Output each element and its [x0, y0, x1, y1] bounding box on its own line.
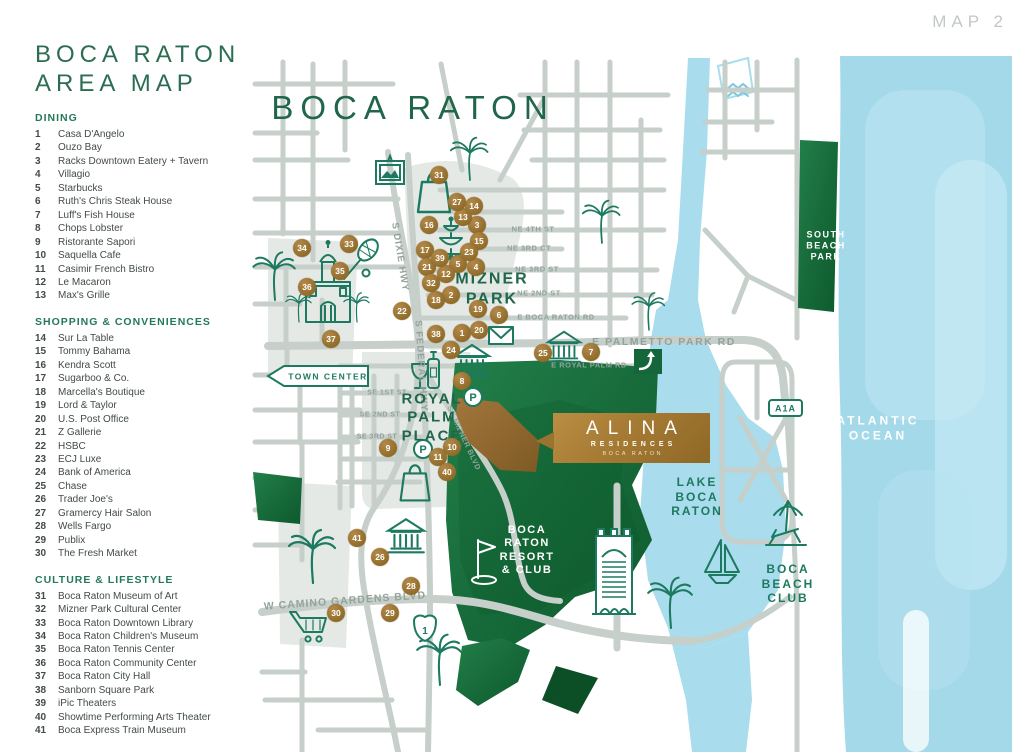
legend-item-label: Chops Lobster	[58, 222, 270, 235]
town-center-sign: TOWN CENTER	[268, 366, 368, 386]
palm-tree-icon	[417, 635, 461, 685]
map-marker-35: 35	[331, 262, 349, 280]
map-marker-16: 16	[420, 216, 438, 234]
legend-item: 30The Fresh Market	[35, 547, 270, 560]
legend-item-number: 28	[35, 520, 58, 533]
legend-item-label: Starbucks	[58, 182, 270, 195]
legend-item-number: 35	[35, 643, 58, 656]
legend-item-label: Tommy Bahama	[58, 345, 270, 358]
legend-item: 2Ouzo Bay	[35, 141, 270, 154]
legend-item-label: Trader Joe's	[58, 493, 270, 506]
svg-text:A1A: A1A	[775, 404, 796, 414]
legend-section: SHOPPING & CONVENIENCES14Sur La Table15T…	[35, 316, 270, 561]
legend-item: 15Tommy Bahama	[35, 345, 270, 358]
map-marker-29: 29	[381, 604, 399, 622]
legend-item: 26Trader Joe's	[35, 493, 270, 506]
legend-item-label: Bank of America	[58, 466, 270, 479]
legend-item-label: U.S. Post Office	[58, 413, 270, 426]
legend-item-number: 11	[35, 263, 58, 276]
legend-item-number: 5	[35, 182, 58, 195]
legend-item: 11Casimir French Bistro	[35, 263, 270, 276]
palm-tree-icon	[583, 201, 620, 243]
area-label: ATLANTIC OCEAN	[836, 413, 919, 442]
legend-item: 19Lord & Taylor	[35, 399, 270, 412]
map-marker-37: 37	[322, 330, 340, 348]
legend-item-number: 7	[35, 209, 58, 222]
legend-item-number: 21	[35, 426, 58, 439]
legend-item-label: Boca Raton Museum of Art	[58, 590, 270, 603]
legend-item-number: 12	[35, 276, 58, 289]
ocean	[839, 56, 1012, 752]
legend-item-number: 14	[35, 332, 58, 345]
legend-item-label: Publix	[58, 534, 270, 547]
map-marker-8: 8	[453, 372, 471, 390]
bank-icon	[388, 519, 424, 552]
legend-item-label: Boca Raton Tennis Center	[58, 643, 270, 656]
legend-item-label: Ouzo Bay	[58, 141, 270, 154]
map-marker-23: 23	[460, 243, 478, 261]
legend-item: 31Boca Raton Museum of Art	[35, 590, 270, 603]
legend-item-label: Saquella Cafe	[58, 249, 270, 262]
map-marker-25: 25	[534, 344, 552, 362]
legend-item-number: 39	[35, 697, 58, 710]
legend-item: 37Boca Raton City Hall	[35, 670, 270, 683]
legend-item: 32Mizner Park Cultural Center	[35, 603, 270, 616]
legend-item-number: 26	[35, 493, 58, 506]
map-page-label: MAP 2	[932, 12, 1008, 32]
legend-heading: SHOPPING & CONVENIENCES	[35, 316, 270, 328]
map-marker-7: 7	[582, 343, 600, 361]
legend-item-label: Ruth's Chris Steak House	[58, 195, 270, 208]
legend-item-label: Wells Fargo	[58, 520, 270, 533]
legend-item-label: HSBC	[58, 440, 270, 453]
map-marker-39: 39	[431, 249, 449, 267]
legend-item: 34Boca Raton Children's Museum	[35, 630, 270, 643]
area-label: BOCA BEACH CLUB	[762, 562, 815, 606]
legend-item-number: 37	[35, 670, 58, 683]
a1a-route-badge: A1A	[769, 400, 802, 416]
street-label: E BOCA RATON RD	[517, 313, 594, 322]
legend-item-number: 20	[35, 413, 58, 426]
legend-item-label: Boca Raton City Hall	[58, 670, 270, 683]
legend-item-number: 8	[35, 222, 58, 235]
legend-item-number: 29	[35, 534, 58, 547]
legend-item-number: 36	[35, 657, 58, 670]
legend-item-number: 19	[35, 399, 58, 412]
legend-item-label: Sanborn Square Park	[58, 684, 270, 697]
legend-item: 21Z Gallerie	[35, 426, 270, 439]
legend-item: 29Publix	[35, 534, 270, 547]
legend-item-label: Max's Grille	[58, 289, 270, 302]
legend-item-number: 40	[35, 711, 58, 724]
page-title: BOCA RATONAREA MAP	[35, 40, 270, 98]
map-marker-19: 19	[469, 300, 487, 318]
legend-item-number: 25	[35, 480, 58, 493]
legend-item-number: 17	[35, 372, 58, 385]
legend-item-label: ECJ Luxe	[58, 453, 270, 466]
area-label: BOCA RATON	[271, 88, 554, 128]
legend-item-number: 9	[35, 236, 58, 249]
legend-item: 13Max's Grille	[35, 289, 270, 302]
legend-item-label: Racks Downtown Eatery + Tavern	[58, 155, 270, 168]
map-marker-22: 22	[393, 302, 411, 320]
legend-item-label: Marcella's Boutique	[58, 386, 270, 399]
legend-item: 6Ruth's Chris Steak House	[35, 195, 270, 208]
legend-heading: CULTURE & LIFESTYLE	[35, 574, 270, 586]
legend-item-label: Villagio	[58, 168, 270, 181]
legend-item: 33Boca Raton Downtown Library	[35, 617, 270, 630]
street-label: E PALMETTO PARK RD	[592, 336, 736, 348]
legend-heading: DINING	[35, 112, 270, 124]
legend-item-label: Mizner Park Cultural Center	[58, 603, 270, 616]
legend-item-label: Chase	[58, 480, 270, 493]
legend-item: 41Boca Express Train Museum	[35, 724, 270, 737]
legend-item-number: 33	[35, 617, 58, 630]
legend-item-label: Kendra Scott	[58, 359, 270, 372]
map-marker-9: 9	[379, 439, 397, 457]
legend-item-number: 2	[35, 141, 58, 154]
map-marker-32: 32	[422, 274, 440, 292]
legend-item-label: Showtime Performing Arts Theater	[58, 711, 270, 724]
legend-item-number: 27	[35, 507, 58, 520]
legend-item-label: Boca Express Train Museum	[58, 724, 270, 737]
map-marker-20: 20	[470, 321, 488, 339]
legend-item-label: Boca Raton Downtown Library	[58, 617, 270, 630]
map-marker-14: 14	[465, 197, 483, 215]
legend-item: 14Sur La Table	[35, 332, 270, 345]
legend-item: 18Marcella's Boutique	[35, 386, 270, 399]
envelope-icon	[489, 327, 513, 344]
legend-item-number: 15	[35, 345, 58, 358]
legend-item-number: 32	[35, 603, 58, 616]
legend-item-number: 38	[35, 684, 58, 697]
legend-item-number: 6	[35, 195, 58, 208]
legend-item-number: 31	[35, 590, 58, 603]
legend-item-label: iPic Theaters	[58, 697, 270, 710]
area-label: LAKE BOCA RATON	[671, 475, 723, 519]
legend-item: 5Starbucks	[35, 182, 270, 195]
map-marker-6: 6	[490, 306, 508, 324]
legend-item: 10Saquella Cafe	[35, 249, 270, 262]
road-curve-sign	[634, 349, 662, 374]
area-label: SOUTH BEACH PARK	[806, 230, 846, 263]
legend-item: 3Racks Downtown Eatery + Tavern	[35, 155, 270, 168]
map-marker-31: 31	[430, 166, 448, 184]
legend-item-label: Lord & Taylor	[58, 399, 270, 412]
street-label: SE 2ND ST	[360, 412, 401, 419]
legend-item-number: 24	[35, 466, 58, 479]
svg-text:P: P	[419, 444, 426, 456]
map-marker-34: 34	[293, 239, 311, 257]
map-marker-24: 24	[442, 341, 460, 359]
parking-icon: P	[464, 388, 482, 406]
legend-item-label: The Fresh Market	[58, 547, 270, 560]
alina-name: ALINA	[577, 419, 686, 439]
map-marker-41: 41	[348, 529, 366, 547]
legend-item: 12Le Macaron	[35, 276, 270, 289]
legend-item-label: Sur La Table	[58, 332, 270, 345]
alina-city: BOCA RATON	[600, 451, 663, 457]
legend-item-number: 18	[35, 386, 58, 399]
legend-item-number: 1	[35, 128, 58, 141]
street-label: NE 4TH ST	[512, 225, 555, 234]
legend-item-label: Casa D'Angelo	[58, 128, 270, 141]
alina-residences-callout: ALINA RESIDENCES BOCA RATON	[553, 413, 710, 463]
legend-item: 35Boca Raton Tennis Center	[35, 643, 270, 656]
legend-item: 40Showtime Performing Arts Theater	[35, 711, 270, 724]
map-marker-40: 40	[438, 463, 456, 481]
svg-text:P: P	[469, 392, 476, 404]
legend-panel: BOCA RATONAREA MAP DINING1Casa D'Angelo2…	[35, 40, 270, 751]
map-marker-28: 28	[402, 577, 420, 595]
alina-callout-tail	[536, 432, 554, 450]
svg-text:1: 1	[422, 626, 428, 637]
legend-sections: DINING1Casa D'Angelo2Ouzo Bay3Racks Down…	[35, 112, 270, 738]
legend-item-number: 41	[35, 724, 58, 737]
legend-item: 4Villagio	[35, 168, 270, 181]
map-marker-30: 30	[327, 604, 345, 622]
street-label: NE 3RD CT	[507, 244, 551, 253]
map-marker-1: 1	[453, 324, 471, 342]
legend-item: 28Wells Fargo	[35, 520, 270, 533]
legend-item-label: Gramercy Hair Salon	[58, 507, 270, 520]
legend-item: 24Bank of America	[35, 466, 270, 479]
legend-item-label: Sugarboo & Co.	[58, 372, 270, 385]
resort-tower-icon	[592, 529, 636, 614]
area-label: BOCA RATON RESORT & CLUB	[500, 524, 555, 578]
alina-subtitle: RESIDENCES	[587, 441, 677, 448]
legend-item: 25Chase	[35, 480, 270, 493]
svg-text:TOWN CENTER: TOWN CENTER	[288, 372, 368, 382]
legend-item: 7Luff's Fish House	[35, 209, 270, 222]
legend-section: CULTURE & LIFESTYLE31Boca Raton Museum o…	[35, 574, 270, 738]
map-marker-38: 38	[427, 325, 445, 343]
legend-item-label: Le Macaron	[58, 276, 270, 289]
south-beach-park-area	[798, 140, 838, 312]
legend-item-label: Boca Raton Children's Museum	[58, 630, 270, 643]
map-marker-26: 26	[371, 548, 389, 566]
legend-item-number: 16	[35, 359, 58, 372]
legend-item-label: Ristorante Sapori	[58, 236, 270, 249]
legend-item: 27Gramercy Hair Salon	[35, 507, 270, 520]
legend-item: 20U.S. Post Office	[35, 413, 270, 426]
legend-item: 17Sugarboo & Co.	[35, 372, 270, 385]
legend-item-number: 23	[35, 453, 58, 466]
map-marker-27: 27	[448, 193, 466, 211]
legend-item-label: Boca Raton Community Center	[58, 657, 270, 670]
legend-item-number: 3	[35, 155, 58, 168]
legend-item: 9Ristorante Sapori	[35, 236, 270, 249]
legend-item-number: 34	[35, 630, 58, 643]
legend-item-number: 30	[35, 547, 58, 560]
map-marker-33: 33	[340, 235, 358, 253]
bank-icon	[548, 332, 580, 362]
legend-item: 38Sanborn Square Park	[35, 684, 270, 697]
legend-item-label: Luff's Fish House	[58, 209, 270, 222]
legend-item: 39iPic Theaters	[35, 697, 270, 710]
legend-item: 22HSBC	[35, 440, 270, 453]
legend-item: 1Casa D'Angelo	[35, 128, 270, 141]
street-label: E ROYAL PALM RD	[551, 361, 627, 370]
legend-item: 16Kendra Scott	[35, 359, 270, 372]
legend-item-number: 22	[35, 440, 58, 453]
legend-item: 23ECJ Luxe	[35, 453, 270, 466]
area-label: MIZNER PARK	[455, 269, 528, 308]
legend-section: DINING1Casa D'Angelo2Ouzo Bay3Racks Down…	[35, 112, 270, 303]
legend-item-number: 4	[35, 168, 58, 181]
legend-item-label: Z Gallerie	[58, 426, 270, 439]
legend-item-label: Casimir French Bistro	[58, 263, 270, 276]
legend-item-number: 13	[35, 289, 58, 302]
map-marker-18: 18	[427, 291, 445, 309]
legend-item-number: 10	[35, 249, 58, 262]
legend-item: 8Chops Lobster	[35, 222, 270, 235]
legend-item: 36Boca Raton Community Center	[35, 657, 270, 670]
map-marker-36: 36	[298, 278, 316, 296]
